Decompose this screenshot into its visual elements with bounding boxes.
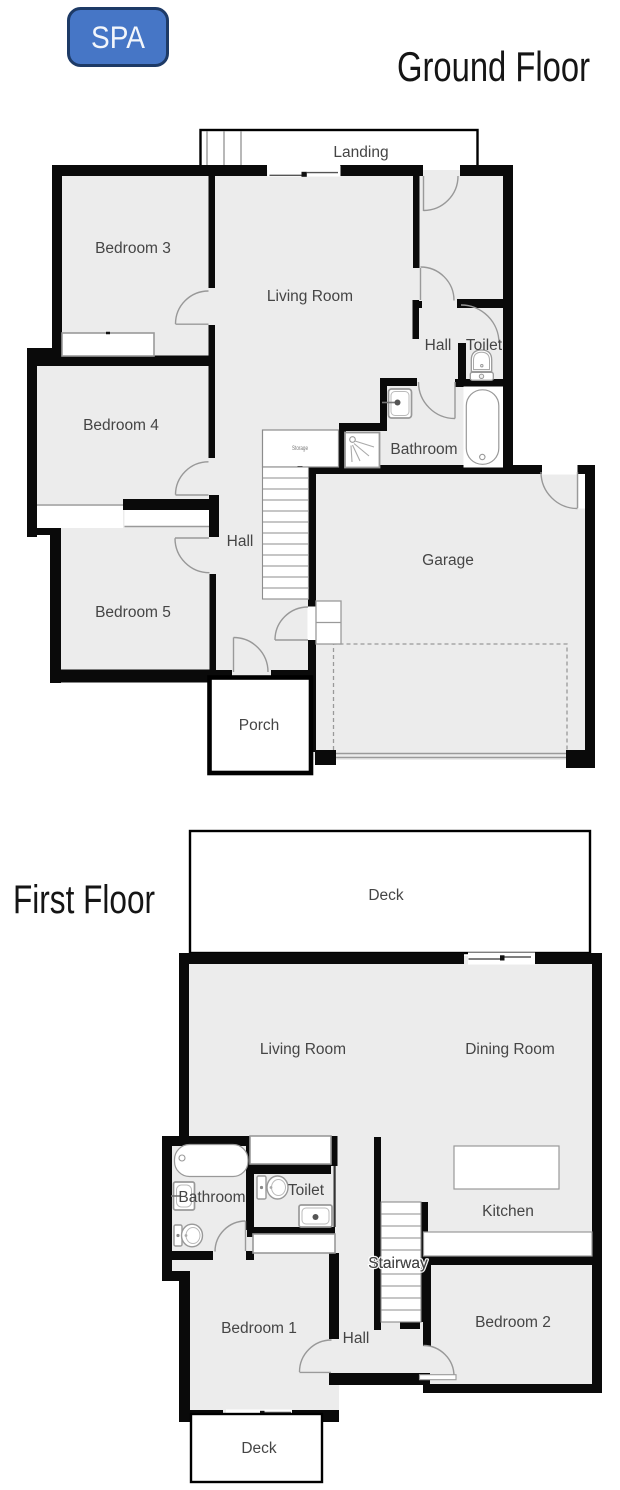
svg-text:Hall: Hall <box>343 1330 370 1347</box>
svg-text:Garage: Garage <box>422 552 474 569</box>
svg-text:Landing: Landing <box>333 144 388 161</box>
svg-text:Toilet: Toilet <box>466 337 503 354</box>
svg-text:Deck: Deck <box>241 1440 277 1457</box>
svg-text:Living Room: Living Room <box>267 288 353 305</box>
svg-text:Bathroom: Bathroom <box>390 441 457 458</box>
svg-text:Bedroom 3: Bedroom 3 <box>95 240 171 257</box>
svg-text:Storage: Storage <box>292 446 309 452</box>
svg-text:Hall: Hall <box>425 337 452 354</box>
svg-text:Toilet: Toilet <box>288 1182 325 1199</box>
svg-text:Deck: Deck <box>368 887 404 904</box>
svg-text:Kitchen: Kitchen <box>482 1203 534 1220</box>
svg-text:SPA: SPA <box>91 19 145 55</box>
svg-text:First Floor: First Floor <box>13 878 155 922</box>
svg-text:Bedroom 2: Bedroom 2 <box>475 1314 551 1331</box>
svg-text:Dining Room: Dining Room <box>465 1041 555 1058</box>
svg-text:Bedroom 4: Bedroom 4 <box>83 417 159 434</box>
svg-text:Living Room: Living Room <box>260 1041 346 1058</box>
svg-text:Bedroom 5: Bedroom 5 <box>95 604 171 621</box>
svg-text:Bedroom 1: Bedroom 1 <box>221 1320 297 1337</box>
svg-text:Stairway: Stairway <box>368 1255 428 1272</box>
svg-text:Ground Floor: Ground Floor <box>397 43 590 90</box>
svg-text:Porch: Porch <box>239 717 280 734</box>
svg-text:Hall: Hall <box>227 533 254 550</box>
svg-text:Bathroom: Bathroom <box>178 1189 245 1206</box>
